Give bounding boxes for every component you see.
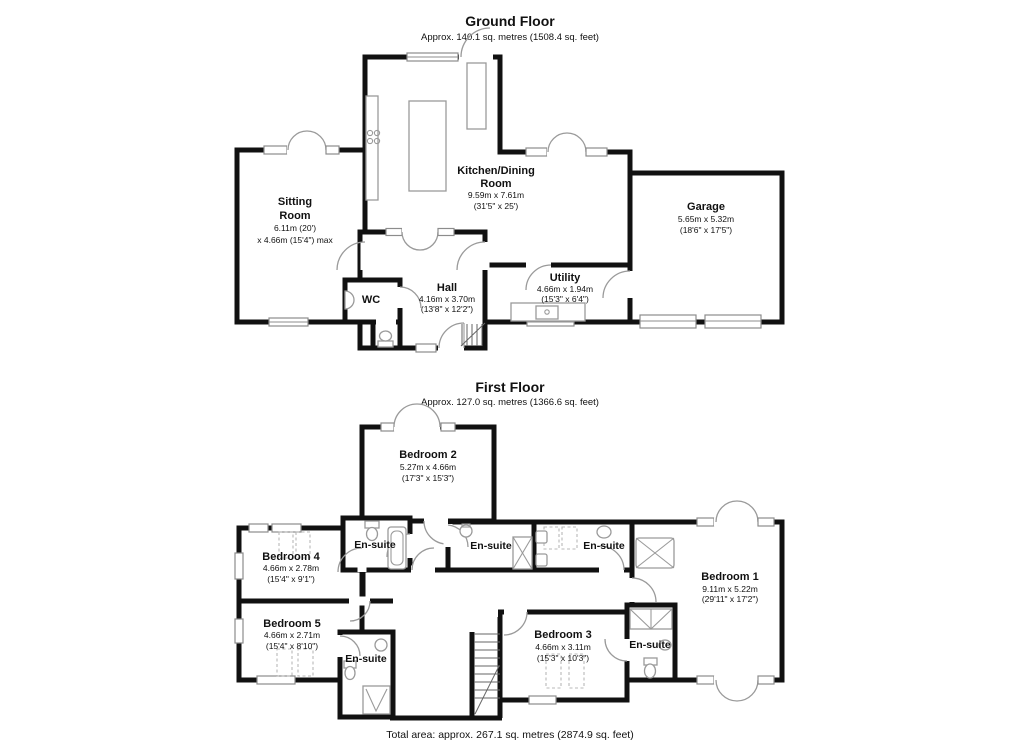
kitchen-dim2: (31'5" x 25') (474, 201, 519, 211)
ensuite-d-bathtub-icon (630, 609, 672, 629)
ensuite-e-shower-icon (363, 686, 390, 714)
ensuite-a-label: En-suite (354, 539, 396, 551)
ensuite-e-label: En-suite (345, 653, 387, 665)
floorplan-page: Ground Floor Approx. 140.1 sq. metres (1… (0, 0, 1024, 745)
total-area-text: Total area: approx. 267.1 sq. metres (28… (386, 729, 633, 741)
kitchen-counter-icon (366, 96, 378, 200)
sitting-room-label2: Room (279, 210, 310, 222)
hall-dim2: (13'8" x 12'2") (421, 304, 473, 314)
first-floor-title: First Floor (475, 379, 545, 395)
bedroom4-dim2: (15'4" x 9'1") (267, 574, 315, 584)
utility-dim2: (15'3" x 6'4") (541, 294, 589, 304)
utility-dim1: 4.66m x 1.94m (537, 284, 593, 294)
ground-floor-subtitle: Approx. 140.1 sq. metres (1508.4 sq. fee… (421, 32, 599, 43)
kitchen-label: Kitchen/Dining (457, 165, 535, 177)
garage-shape (630, 173, 782, 322)
first-floor-plan: First Floor Approx. 127.0 sq. metres (13… (235, 379, 782, 722)
bedroom3-dim1: 4.66m x 3.11m (535, 642, 591, 652)
ground-floor-title: Ground Floor (465, 13, 555, 29)
sitting-room-dim1: 6.11m (20') (274, 223, 316, 233)
kitchen-east-window-1 (526, 148, 547, 156)
ensuite-b-basin-icon (460, 524, 472, 537)
kitchen-east-window-2 (586, 148, 607, 156)
bedroom5-dim1: 4.66m x 2.71m (264, 630, 320, 640)
wc-label: WC (362, 294, 380, 306)
floorplan-drawing: Ground Floor Approx. 140.1 sq. metres (1… (0, 0, 1024, 745)
ensuite-b-shower-icon (513, 537, 532, 569)
kitchen-label2: Room (480, 178, 511, 190)
sitting-top-window-2 (326, 146, 339, 154)
ensuite-a-toilet-icon (365, 521, 379, 541)
utility-label: Utility (550, 272, 581, 284)
ensuite-e-basin-icon (375, 639, 387, 651)
bedroom1-dim1: 9.11m x 5.22m (702, 584, 758, 594)
bedroom5-dim2: (15'4" x 8'10") (266, 641, 318, 651)
bedroom1-bed-icon (636, 538, 674, 568)
bedroom4-dim1: 4.66m x 2.78m (263, 563, 319, 573)
bedroom1-label: Bedroom 1 (701, 571, 758, 583)
sitting-top-window-1 (264, 146, 287, 154)
kitchen-tall-unit-icon (467, 63, 486, 129)
kitchen-island-icon (409, 101, 446, 191)
front-sidelight-window (416, 344, 436, 352)
first-floor-subtitle: Approx. 127.0 sq. metres (1366.6 sq. fee… (421, 397, 599, 408)
bedroom2-dim1: 5.27m x 4.66m (400, 462, 456, 472)
utility-sink-icon (511, 303, 585, 321)
ensuite-b-label: En-suite (470, 540, 512, 552)
ground-floor-plan: Ground Floor Approx. 140.1 sq. metres (1… (237, 13, 782, 353)
ensuite-d-toilet-icon (644, 658, 657, 678)
garage-dim2: (18'6" x 17'5") (680, 225, 732, 235)
bedroom2-label: Bedroom 2 (399, 449, 456, 461)
bedroom3-label: Bedroom 3 (534, 629, 591, 641)
ensuite-c-label: En-suite (583, 540, 625, 552)
sitting-room-dim2: x 4.66m (15'4") max (257, 235, 333, 245)
hall-label: Hall (437, 282, 457, 294)
ensuite-c-basin-icon (597, 526, 611, 538)
bedroom1-dim2: (29'11" x 17'2") (702, 594, 759, 604)
hall-dim1: 4.16m x 3.70m (419, 294, 475, 304)
garage-label: Garage (687, 201, 725, 213)
bedroom3-dim2: (15'3" x 10'3") (537, 653, 589, 663)
bedroom5-label: Bedroom 5 (263, 618, 320, 630)
wc-toilet-icon (378, 331, 393, 347)
bedroom2-dim2: (17'3" x 15'3") (402, 473, 454, 483)
bedroom4-label: Bedroom 4 (262, 551, 320, 563)
garage-dim1: 5.65m x 5.32m (678, 214, 734, 224)
ensuite-d-label: En-suite (629, 639, 671, 651)
sitting-room-label: Sitting (278, 196, 312, 208)
kitchen-dim1: 9.59m x 7.61m (468, 190, 524, 200)
